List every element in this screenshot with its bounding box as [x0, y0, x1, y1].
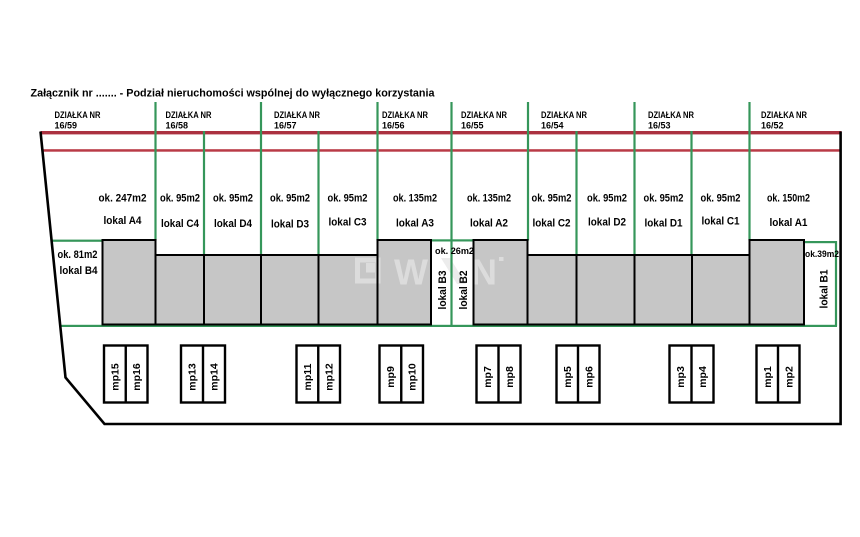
- svg-text:DZIAŁKA NR: DZIAŁKA NR: [166, 110, 212, 120]
- svg-text:lokal B4: lokal B4: [60, 265, 99, 277]
- svg-text:mp6: mp6: [583, 366, 595, 388]
- svg-text:ok. 150m2: ok. 150m2: [767, 193, 810, 205]
- svg-text:ok. 95m2: ok. 95m2: [587, 193, 627, 205]
- svg-text:lokal C4: lokal C4: [161, 218, 200, 230]
- svg-text:ok. 135m2: ok. 135m2: [467, 193, 511, 205]
- svg-text:ok. 81m2: ok. 81m2: [58, 249, 98, 261]
- svg-text:mp1: mp1: [762, 366, 774, 388]
- svg-text:DZIAŁKA NR: DZIAŁKA NR: [761, 110, 807, 120]
- svg-text:DZIAŁKA NR: DZIAŁKA NR: [274, 110, 320, 120]
- svg-text:mp10: mp10: [407, 363, 419, 391]
- svg-text:16/59: 16/59: [55, 121, 78, 131]
- svg-text:lokal C1: lokal C1: [702, 216, 740, 228]
- svg-text:ok. 247m2: ok. 247m2: [99, 193, 147, 205]
- svg-text:DZIAŁKA NR: DZIAŁKA NR: [541, 110, 587, 120]
- svg-text:mp3: mp3: [675, 366, 687, 388]
- svg-text:ok. 95m2: ok. 95m2: [701, 193, 741, 205]
- svg-text:16/57: 16/57: [274, 121, 297, 131]
- svg-text:ok. 95m2: ok. 95m2: [270, 193, 310, 205]
- svg-text:DZIAŁKA NR: DZIAŁKA NR: [382, 110, 428, 120]
- svg-text:ok. 95m2: ok. 95m2: [328, 193, 368, 205]
- svg-text:ok. 95m2: ok. 95m2: [160, 193, 200, 205]
- svg-text:mp2: mp2: [783, 366, 795, 388]
- svg-text:ok.39m2: ok.39m2: [805, 249, 839, 260]
- svg-text:lokal C3: lokal C3: [329, 217, 367, 229]
- svg-text:lokal D3: lokal D3: [271, 219, 309, 231]
- svg-text:16/53: 16/53: [648, 121, 671, 131]
- svg-text:mp4: mp4: [697, 366, 709, 388]
- svg-text:Załącznik nr ....... - Podział: Załącznik nr ....... - Podział nieruchom…: [31, 88, 436, 100]
- svg-text:mp5: mp5: [562, 366, 574, 388]
- svg-text:16/54: 16/54: [541, 121, 564, 131]
- svg-text:ok. 95m2: ok. 95m2: [213, 193, 253, 205]
- svg-text:lokal B3: lokal B3: [437, 271, 449, 310]
- svg-text:mp9: mp9: [385, 366, 397, 388]
- svg-text:lokal A1: lokal A1: [770, 217, 808, 229]
- svg-text:lokal B2: lokal B2: [458, 271, 470, 310]
- svg-text:mp15: mp15: [109, 363, 121, 391]
- svg-text:lokal A2: lokal A2: [470, 218, 508, 230]
- svg-text:mp12: mp12: [324, 363, 336, 391]
- svg-text:ok. 95m2: ok. 95m2: [644, 193, 684, 205]
- svg-text:mp11: mp11: [302, 363, 314, 390]
- svg-text:mp14: mp14: [209, 363, 221, 391]
- svg-text:ok. 95m2: ok. 95m2: [532, 193, 572, 205]
- svg-text:lokal B1: lokal B1: [818, 270, 830, 309]
- svg-text:DZIAŁKA NR: DZIAŁKA NR: [461, 110, 507, 120]
- svg-text:lokal A3: lokal A3: [396, 218, 434, 230]
- svg-text:lokal D1: lokal D1: [645, 218, 683, 230]
- svg-text:lokal D4: lokal D4: [214, 218, 253, 230]
- svg-text:ok. 135m2: ok. 135m2: [393, 193, 437, 205]
- svg-text:mp16: mp16: [131, 363, 143, 391]
- svg-text:ok. 26m2: ok. 26m2: [435, 246, 474, 257]
- svg-text:16/55: 16/55: [461, 121, 484, 131]
- svg-text:16/58: 16/58: [166, 121, 189, 131]
- svg-text:DZIAŁKA NR: DZIAŁKA NR: [55, 110, 101, 120]
- svg-text:W: W: [394, 252, 428, 293]
- svg-text:lokal A4: lokal A4: [104, 215, 143, 227]
- svg-text:DZIAŁKA NR: DZIAŁKA NR: [648, 110, 694, 120]
- svg-text:lokal C2: lokal C2: [533, 218, 571, 230]
- svg-text:mp7: mp7: [482, 366, 494, 388]
- svg-text:N: N: [471, 252, 497, 293]
- svg-text:16/56: 16/56: [382, 121, 405, 131]
- svg-text:lokal D2: lokal D2: [588, 217, 626, 229]
- svg-text:mp13: mp13: [187, 363, 199, 391]
- svg-text:mp8: mp8: [504, 366, 516, 388]
- svg-text:16/52: 16/52: [761, 121, 784, 131]
